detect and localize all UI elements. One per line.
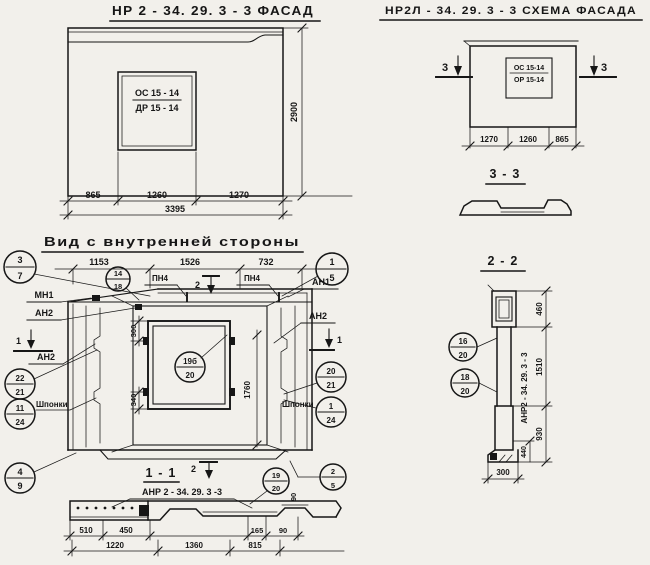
- balloon-18-20: 18 20: [451, 369, 497, 397]
- balloon-22-21-top: 22: [16, 374, 25, 383]
- label-an2-left-1: АН2: [35, 308, 53, 318]
- balloon-19-20-top: 19: [272, 471, 280, 480]
- section-marker-1-left-label: 1: [16, 336, 21, 346]
- section-2-2-label: АНР2 - 34. 29. 3 - 3: [520, 352, 529, 424]
- section-marker-1-right: 1: [310, 329, 342, 350]
- section-marker-3-right-label: 3: [601, 62, 607, 74]
- label-an2-left-2: АН2: [37, 352, 55, 362]
- section-2-2-title: 2 - 2: [487, 254, 518, 268]
- facade-title: НР 2 - 34. 29. 3 - 3 ФАСАД: [112, 4, 314, 18]
- dim-460: 460: [535, 302, 544, 316]
- balloon-11-24-bottom: 24: [16, 418, 25, 427]
- window-dim-1760: 1760: [243, 381, 252, 399]
- label-pn4-left: ПН4: [152, 274, 169, 283]
- dim-1510: 1510: [535, 358, 544, 376]
- inner-view-title: Вид с внутренней стороны: [44, 235, 300, 249]
- dim-930: 930: [535, 427, 544, 441]
- label-shponki-left: Шпонки: [36, 400, 68, 409]
- inner-bottom-skirt: [100, 450, 286, 459]
- facade-dim-1270: 1270: [229, 190, 249, 200]
- balloon-20-21: 20 21: [284, 362, 346, 394]
- schema-dim-1270: 1270: [480, 135, 498, 144]
- section-marker-1-right-label: 1: [337, 335, 342, 345]
- section-3-3: 3 - 3: [460, 167, 571, 215]
- balloon-22-21-bottom: 21: [16, 388, 25, 397]
- balloon-18-20-bottom: 20: [461, 387, 470, 396]
- section-marker-2-bottom-label: 2: [191, 464, 196, 474]
- balloon-4-9: 4 9: [5, 453, 76, 493]
- balloon-1-24-bottom: 24: [327, 416, 336, 425]
- section-1-1-title: 1 - 1: [145, 466, 176, 480]
- foot-anchor: [490, 453, 497, 460]
- facade-window-mark-bottom: ДР 15 - 14: [136, 103, 179, 113]
- right-keys-edge: [281, 308, 287, 443]
- inner-view: Вид с внутренней стороны 1153 1526 732: [4, 235, 348, 505]
- section-3-3-title: 3 - 3: [489, 167, 520, 181]
- dim-165: 165: [251, 526, 264, 535]
- facade-top-band: [68, 35, 283, 42]
- section-marker-1-left: 1: [14, 330, 52, 351]
- section-2-2-profile: [488, 285, 518, 462]
- section-marker-3-right: 3: [580, 56, 616, 77]
- schema-dim-1260: 1260: [519, 135, 537, 144]
- inner-dim-732: 732: [258, 257, 273, 267]
- balloon-3-7-bottom: 7: [17, 271, 22, 281]
- schema-view: НР2Л - 34. 29. 3 - 3 СХЕМА ФАСАДА ОС 15-…: [380, 5, 642, 150]
- label-mn1: МН1: [34, 290, 53, 300]
- balloon-19b-20-bottom: 20: [186, 371, 195, 380]
- window-dim-340: 340: [129, 394, 138, 407]
- schema-dim-865: 865: [555, 135, 569, 144]
- schema-window-mark-bottom: ОР 15-14: [514, 77, 544, 84]
- section-1-1-profile: [70, 501, 341, 520]
- anchor-an2: [135, 304, 142, 310]
- balloon-11-24-top: 11: [16, 404, 25, 413]
- balloon-1-24-top: 1: [329, 402, 334, 411]
- section-1-1: 1 - 1 2 АНР 2 - 34. 29. 3 -3: [64, 462, 344, 556]
- balloon-4-9-top: 4: [17, 467, 22, 477]
- label-pn4-right: ПН4: [244, 274, 261, 283]
- balloon-1-5-top: 1: [329, 257, 334, 267]
- balloon-16-20: 16 20: [449, 333, 497, 361]
- profile-bottom-edge: [148, 508, 336, 520]
- balloon-19-20: 19 20: [250, 468, 289, 504]
- section-marker-2-bottom: 2: [191, 462, 217, 479]
- balloon-16-20-bottom: 20: [459, 351, 468, 360]
- schema-window-mark-top: ОС 15-14: [514, 65, 544, 72]
- facade-dim-total: 3395: [165, 204, 185, 214]
- dim-815: 815: [248, 541, 262, 550]
- balloon-1-5-bottom: 5: [329, 273, 334, 283]
- facade-dim-1260: 1260: [147, 190, 167, 200]
- window-anchor-tab: [229, 337, 235, 345]
- section-1-1-label: АНР 2 - 34. 29. 3 -3: [142, 487, 222, 497]
- balloon-14-18: 14 18: [106, 267, 139, 300]
- window-anchor-tab: [143, 388, 149, 396]
- anchor-mn1: [92, 295, 100, 301]
- dim-300: 300: [496, 468, 510, 477]
- profile-lower-block: [495, 406, 513, 450]
- window-anchor-tab: [229, 388, 235, 396]
- dim-1360: 1360: [185, 541, 203, 550]
- balloon-14-18-top: 14: [114, 269, 123, 278]
- drawing-sheet: НР 2 - 34. 29. 3 - 3 ФАСАД ОС 15 - 14 ДР…: [0, 0, 650, 565]
- balloon-11-24: 11 24: [5, 399, 35, 429]
- balloon-2-5-top: 2: [331, 467, 335, 476]
- label-an2-right: АН2: [309, 311, 327, 321]
- balloon-19b-20: 19б 20: [175, 335, 227, 382]
- section-marker-2-top: 2: [195, 276, 219, 294]
- dim-440: 440: [521, 446, 528, 458]
- section-marker-2-top-label: 2: [195, 280, 200, 290]
- facade-view: НР 2 - 34. 29. 3 - 3 ФАСАД ОС 15 - 14 ДР…: [60, 4, 352, 219]
- balloon-2-5: 2 5: [290, 461, 346, 490]
- facade-window-mark-top: ОС 15 - 14: [135, 88, 179, 98]
- window-dim-300: 300: [129, 325, 138, 338]
- profile-anchor-block: [139, 505, 149, 516]
- dim-90: 90: [279, 526, 287, 535]
- balloon-20-21-bottom: 21: [327, 381, 336, 390]
- dim-510: 510: [79, 526, 93, 535]
- balloon-18-20-top: 18: [461, 373, 470, 382]
- dim-1220: 1220: [106, 541, 124, 550]
- section-marker-3-left-label: 3: [442, 62, 448, 74]
- label-shponki-right: Шпонки: [282, 400, 314, 409]
- balloon-3-7-top: 3: [17, 255, 22, 265]
- inner-dim-1153: 1153: [89, 257, 109, 267]
- balloon-4-9-bottom: 9: [17, 481, 22, 491]
- balloon-20-21-top: 20: [327, 367, 336, 376]
- dim-450: 450: [119, 526, 133, 535]
- facade-dim-865: 865: [85, 190, 100, 200]
- section-2-2: 2 - 2 16 20 18 20: [449, 254, 552, 483]
- inner-dim-1526: 1526: [180, 257, 200, 267]
- balloon-19b-20-top: 19б: [183, 357, 197, 366]
- balloon-14-18-bottom: 18: [114, 282, 122, 291]
- label-an1: АН1: [312, 277, 330, 287]
- panel-drawing: НР 2 - 34. 29. 3 - 3 ФАСАД ОС 15 - 14 ДР…: [0, 0, 650, 565]
- balloon-16-20-top: 16: [459, 337, 468, 346]
- facade-dim-height: 2900: [289, 102, 299, 122]
- balloon-2-5-bottom: 5: [331, 481, 335, 490]
- balloon-19-20-bottom: 20: [272, 484, 280, 493]
- window-anchor-tab: [143, 337, 149, 345]
- schema-title: НР2Л - 34. 29. 3 - 3 СХЕМА ФАСАДА: [385, 5, 637, 17]
- section-3-3-profile: [460, 200, 571, 215]
- section-marker-3-left: 3: [436, 56, 472, 77]
- inner-dim-90: 90: [289, 493, 298, 501]
- left-keys-edge: [94, 308, 100, 443]
